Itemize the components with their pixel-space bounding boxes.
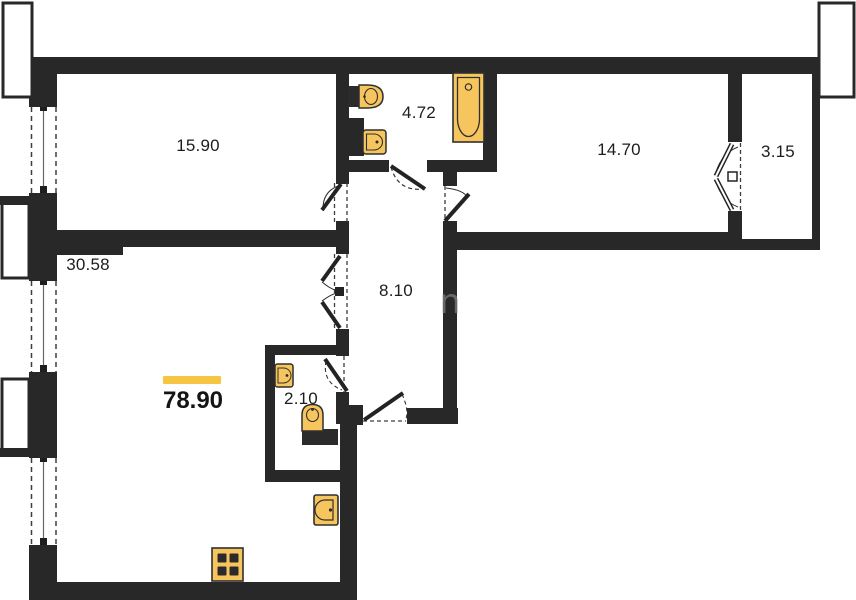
bathroom-door [391, 166, 425, 189]
wc-door [325, 356, 347, 392]
kitchen-door [363, 393, 407, 421]
room-label-living-room: 15.90 [176, 136, 220, 156]
kitchen-sink-icon [314, 495, 338, 525]
floor-plan-page: n 15.90 4.72 14.70 3.15 30.58 8.10 2.10 … [0, 0, 856, 600]
washbasin-icon [363, 130, 386, 154]
walls [29, 57, 820, 600]
room-label-kitchen-living: 30.58 [66, 255, 110, 275]
total-area-label: 78.90 [163, 387, 223, 415]
living-double-door [322, 254, 347, 330]
wc-washbasin-icon [275, 364, 293, 387]
room-label-bedroom: 14.70 [597, 140, 641, 160]
total-area-highlight-bar [163, 376, 221, 384]
floor-plan-drawing: n [0, 0, 856, 600]
room-label-hallway: 8.10 [379, 281, 413, 301]
room-label-wc: 2.10 [284, 389, 318, 409]
stove-icon [212, 548, 243, 581]
toilet-icon [348, 85, 383, 108]
watermark-text: n [439, 282, 461, 322]
wc-toilet-icon [302, 405, 338, 446]
room-label-balcony: 3.15 [761, 142, 795, 162]
room-label-bathroom: 4.72 [402, 103, 436, 123]
living-room-door [322, 183, 347, 222]
bedroom-door [445, 186, 469, 221]
balcony-french-door [716, 143, 741, 211]
bathtub-icon [453, 73, 484, 142]
